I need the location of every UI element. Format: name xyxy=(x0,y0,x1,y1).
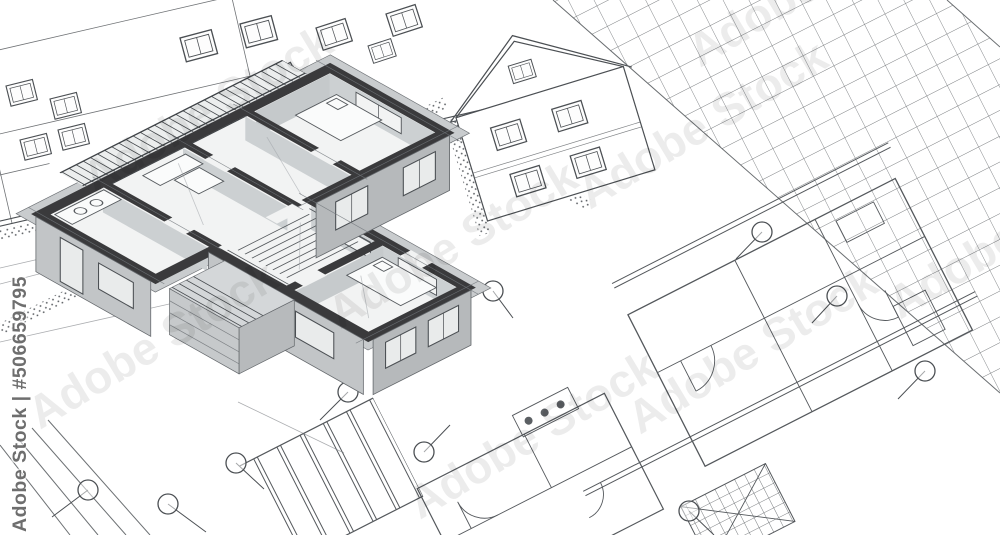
watermark-asset-id: Adobe Stock | #506659795 xyxy=(9,276,31,532)
architectural-sketch: Adobe Stock Adobe Stock Adobe Stock Adob… xyxy=(0,0,1000,535)
watermark-text: Adobe Stock xyxy=(618,254,886,444)
joist-plan-sketch xyxy=(239,398,423,535)
stock-image-canvas: Adobe Stock Adobe Stock Adobe Stock Adob… xyxy=(0,0,1000,535)
watermark-text: Adobe Stock xyxy=(398,339,666,529)
